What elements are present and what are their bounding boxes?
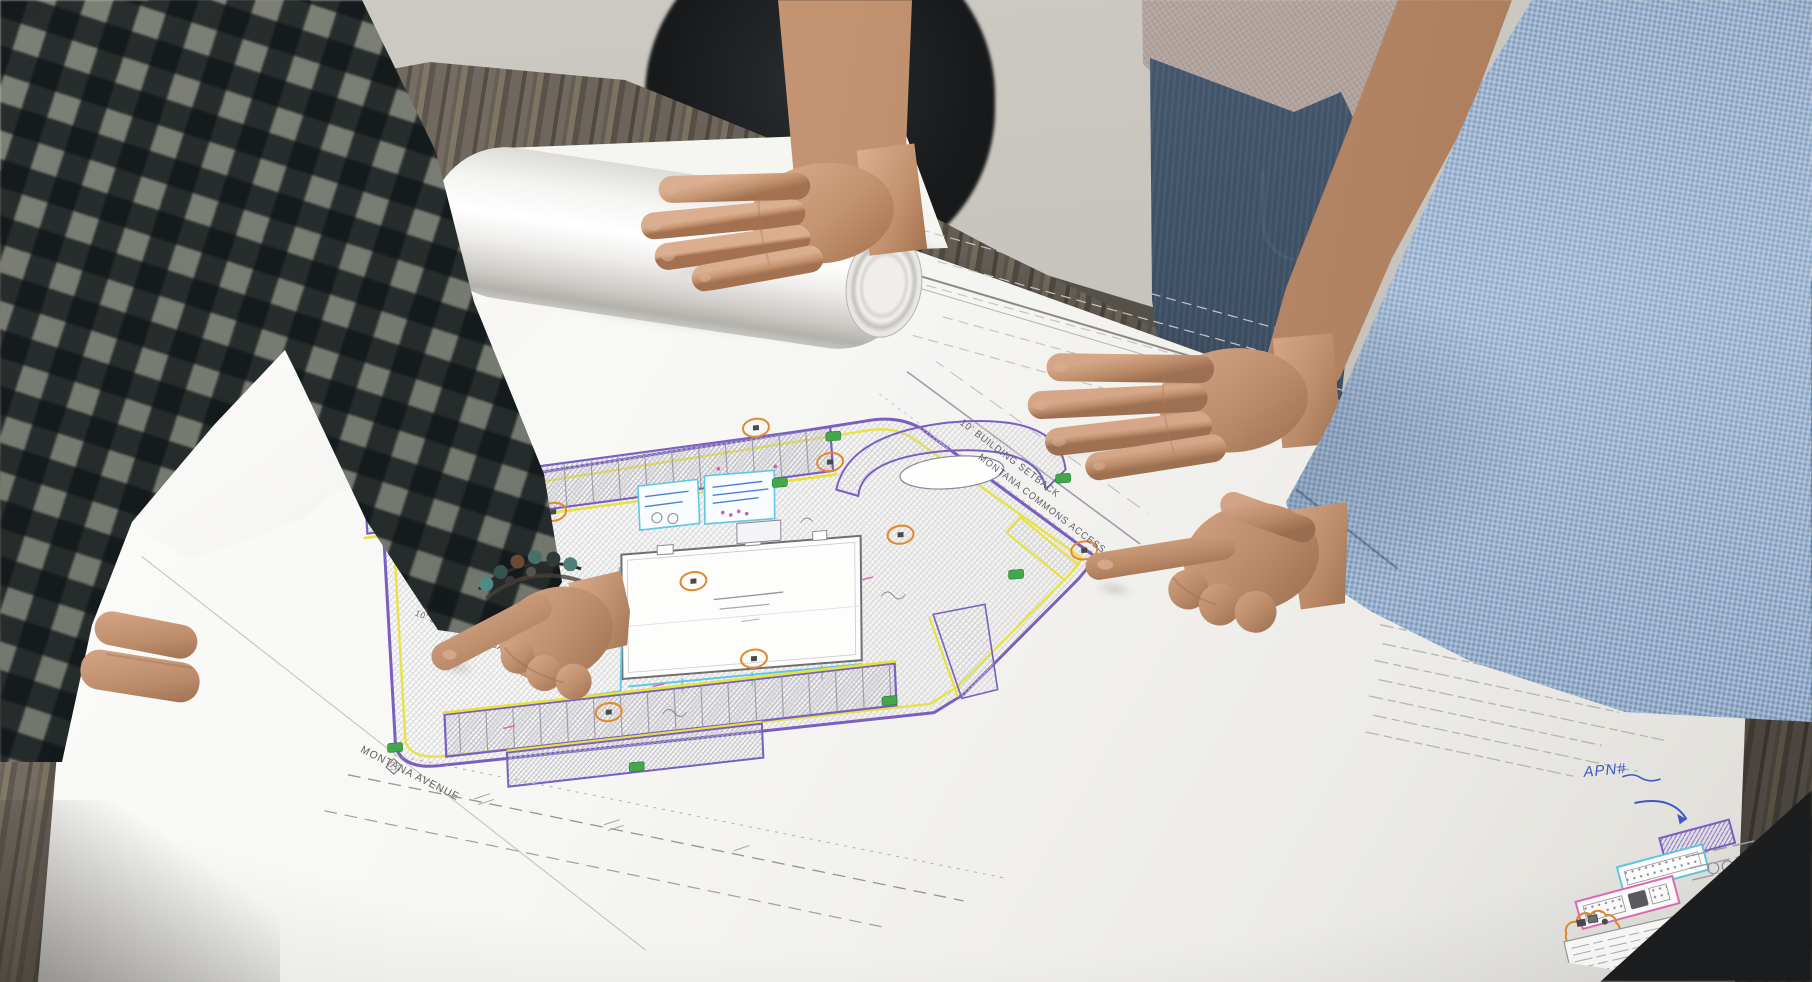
apn-handwritten-note: APN# (1582, 760, 1628, 781)
photo-site-plan-review: 10' BUILDING SETBACK MONTANA COMMONS ACC… (0, 0, 1812, 982)
ink-arrowhead-icon (1676, 814, 1687, 825)
ink-scribble (1622, 773, 1660, 783)
plaid-resting-fingers (46, 592, 216, 722)
blue-shirt-pointing-hand (1059, 433, 1351, 648)
entry-canopy (737, 520, 781, 544)
bottom-left-shadow (0, 800, 280, 982)
plaid-pointing-hand (411, 536, 635, 724)
